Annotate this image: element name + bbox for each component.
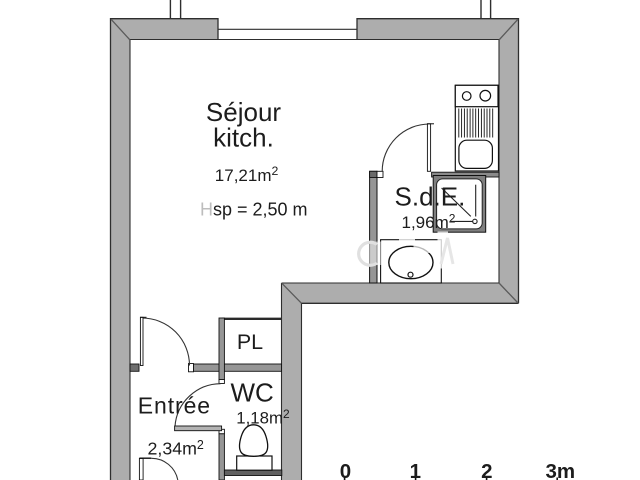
svg-text:17,21m2: 17,21m2	[215, 164, 279, 185]
svg-text:Hsp = 2,50 m: Hsp = 2,50 m	[200, 200, 308, 220]
svg-text:PL: PL	[237, 330, 263, 354]
svg-text:0: 0	[340, 460, 351, 480]
svg-text:1,18m2: 1,18m2	[236, 407, 290, 427]
svg-text:kitch.: kitch.	[213, 123, 274, 153]
svg-text:Entrée: Entrée	[138, 392, 211, 418]
svg-text:1: 1	[410, 460, 421, 480]
svg-text:S.d.E.: S.d.E.	[395, 181, 466, 211]
svg-text:1,96m2: 1,96m2	[402, 212, 456, 232]
svg-text:2: 2	[481, 460, 492, 480]
svg-text:2,34m2: 2,34m2	[148, 438, 204, 458]
svg-text:WC: WC	[231, 378, 274, 408]
svg-text:3m: 3m	[546, 460, 576, 480]
